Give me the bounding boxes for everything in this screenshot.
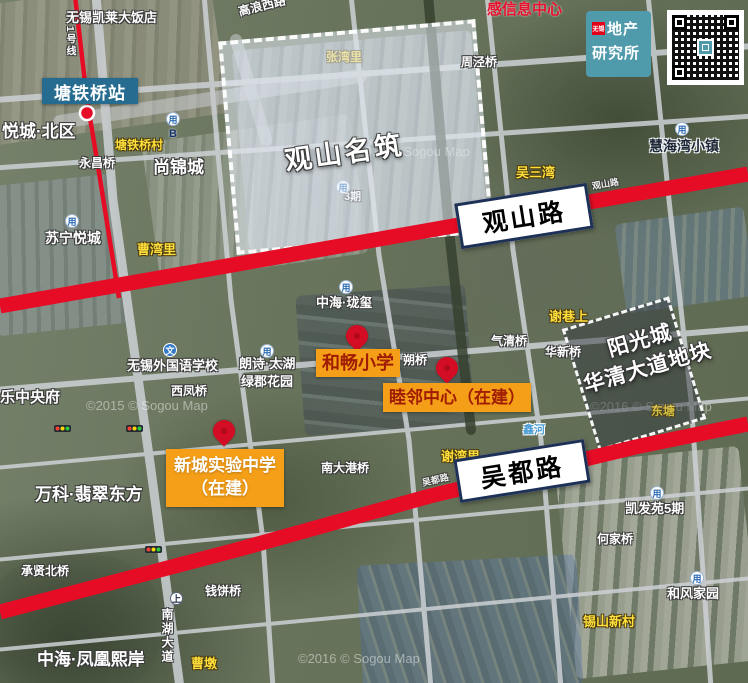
traffic-light-icon: [145, 546, 162, 553]
guanshan-road-band: [0, 174, 748, 306]
map-label: 感信息中心: [487, 2, 562, 17]
metro-station-icon: 用: [65, 214, 79, 228]
poi-name: 睦邻中心（在建）: [389, 388, 525, 407]
road-name: 观山路: [480, 192, 569, 241]
map-label: 尚锦城: [153, 159, 204, 176]
qr-finder-icon: [672, 65, 687, 80]
map-label: 气清桥: [491, 335, 527, 347]
map-label: 南大港桥: [321, 462, 369, 474]
school-icon: 文: [163, 343, 177, 357]
map-label: 承贤北桥: [21, 565, 69, 577]
metro-line-1: [75, 0, 119, 298]
map-label: 吴三湾: [516, 166, 555, 179]
metro-entrance-label: B: [169, 129, 177, 140]
map-label: 何家桥: [597, 533, 633, 545]
brand-line2: 研究所: [592, 42, 645, 63]
map-label: 绿郡花园: [241, 375, 293, 388]
map-label: 曹墩: [191, 657, 217, 670]
map-label: 华新桥: [545, 346, 581, 358]
map-label: 朔桥: [403, 354, 427, 366]
wudu-road-band: [0, 424, 748, 612]
station-name: 塘铁桥站: [54, 79, 126, 104]
map-label: 塘铁桥村: [115, 139, 163, 151]
qr-center-logo-icon: [697, 39, 714, 56]
metro-entrance-icon: 用: [166, 112, 180, 126]
road-sign-icon: 上: [170, 592, 183, 605]
metro-station-icon: 用: [339, 280, 353, 294]
poi-label-xincheng-school: 新城实验中学 （在建）: [166, 449, 284, 507]
map-label: 南湖大道: [161, 608, 173, 664]
brand-badge: 无锡: [592, 22, 605, 35]
watermark: ©2016 © Sogou Map: [298, 652, 420, 665]
map-label: 无锡凯莱大饭店: [66, 11, 157, 24]
map-label: 中海·珑玺: [316, 296, 372, 309]
map-label: 悦城·北区: [2, 123, 76, 140]
metro-station-icon: 用: [675, 122, 689, 136]
watermark: ©2015 © Sogou Map: [86, 399, 208, 412]
qr-pattern: [672, 15, 739, 80]
map-label: 1号线: [64, 26, 74, 58]
map-label: 谢巷上: [549, 310, 588, 323]
map-canvas: 观山名筑 阳光城 华清大道地块 塘铁桥站 观山路 吴都路 和畅小学: [0, 0, 748, 683]
map-label: 西凤桥: [171, 385, 207, 397]
map-label: 永昌桥: [79, 157, 115, 169]
road-name: 吴都路: [478, 447, 567, 496]
qr-code: [667, 10, 744, 85]
traffic-light-icon: [126, 425, 143, 432]
metro-station-dot: [80, 106, 94, 120]
poi-label-mulin-center: 睦邻中心（在建）: [383, 383, 531, 412]
brand-logo: 无锡 地产 研究所: [586, 11, 651, 77]
metro-station-icon: 用: [690, 571, 704, 585]
map-label: 凯发苑5期: [625, 502, 684, 515]
poi-name: 和畅小学: [322, 353, 394, 373]
poi-name-line2: （在建）: [166, 478, 284, 501]
map-label: 和风家园: [667, 587, 719, 600]
map-label: 苏宁悦城: [45, 231, 101, 245]
map-label: 慧海湾小镇: [649, 139, 719, 153]
brand-line1: 地产: [607, 18, 639, 39]
map-label: 朗诗·太湖: [239, 357, 295, 370]
map-label: 周泾桥: [461, 56, 497, 68]
poi-name-line1: 新城实验中学: [166, 455, 284, 478]
map-label: 鑫河: [523, 425, 545, 436]
qr-finder-icon: [672, 15, 687, 30]
map-label: 中海·凤凰熙岸: [37, 651, 145, 668]
metro-station-icon: 用: [260, 344, 274, 358]
station-label-tangtieqiao: 塘铁桥站: [42, 78, 138, 104]
map-label: 曹湾里: [137, 243, 176, 256]
map-label: 钱饼桥: [205, 585, 241, 597]
map-label: 无锡外国语学校: [127, 359, 218, 372]
poi-label-hechang-primary-school: 和畅小学: [316, 349, 400, 377]
qr-finder-icon: [724, 15, 739, 30]
map-label: 万科·翡翠东方: [35, 486, 143, 503]
map-label: 东塘: [651, 405, 675, 417]
map-label: 乐中央府: [0, 390, 60, 405]
traffic-light-icon: [54, 425, 71, 432]
map-label: 锡山新村: [583, 615, 635, 628]
metro-station-icon: 用: [650, 486, 664, 500]
